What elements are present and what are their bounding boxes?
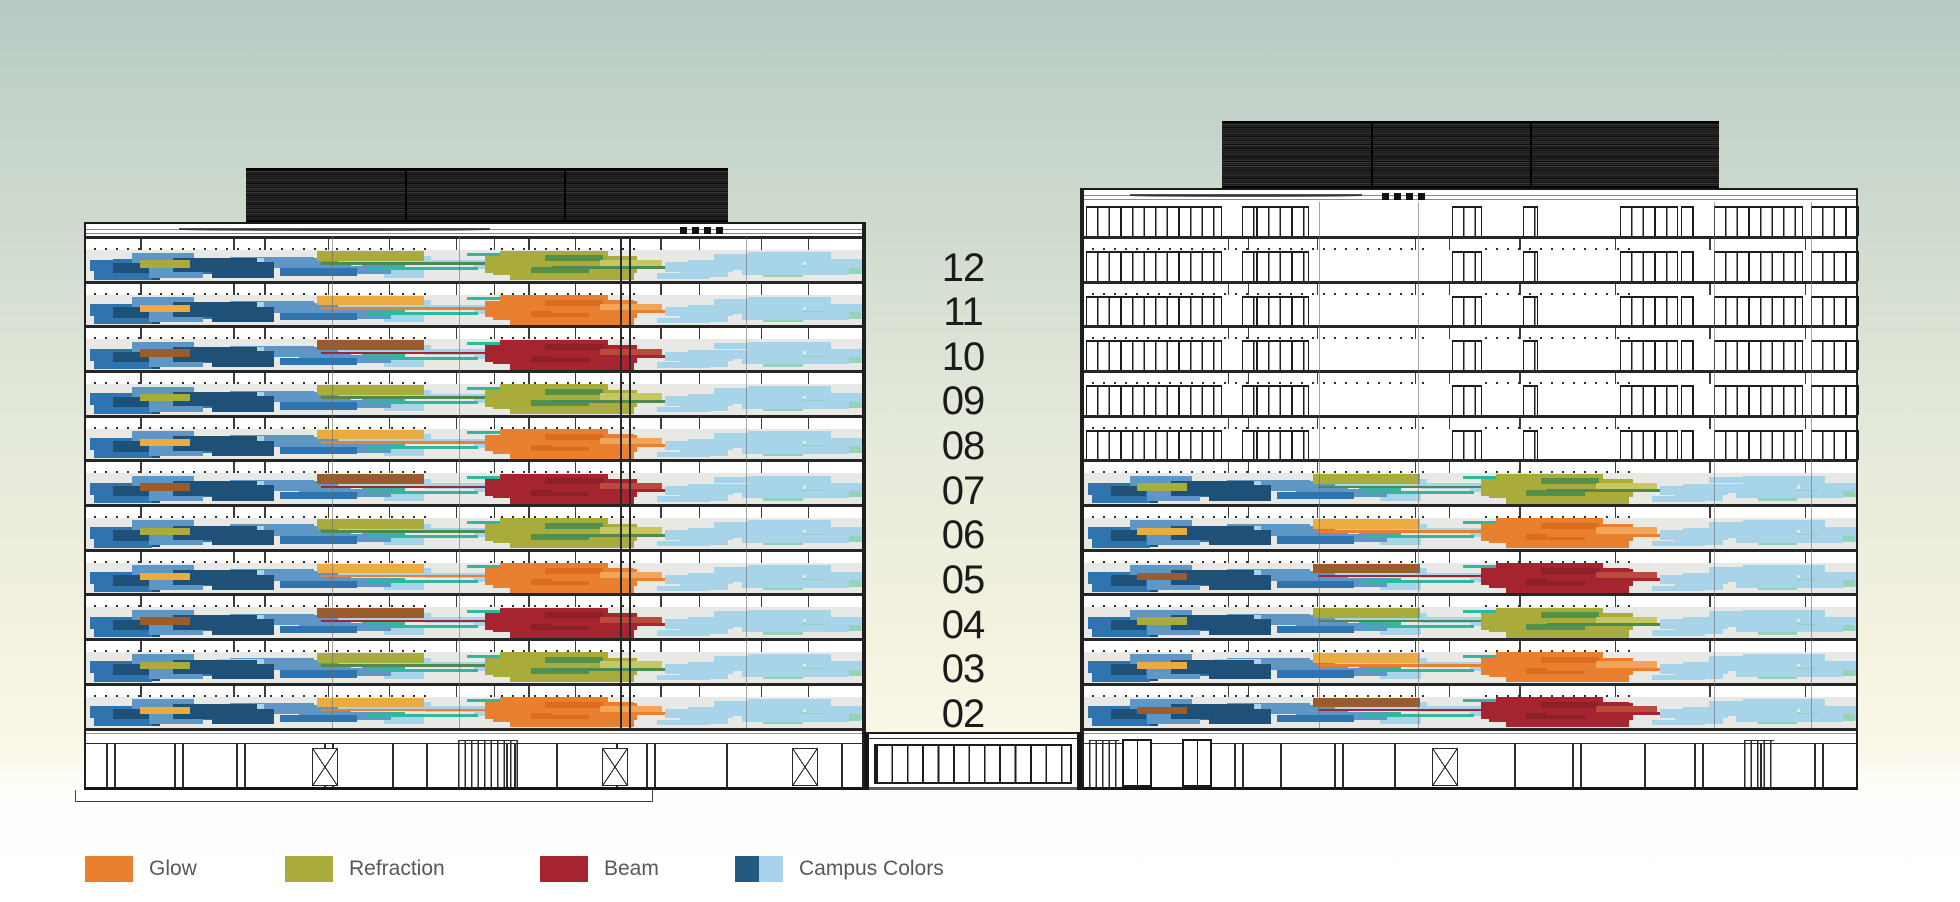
mural-band-05	[1084, 563, 1856, 594]
mullion-line	[660, 507, 661, 518]
storefront-mullion	[106, 744, 108, 788]
window-group	[1523, 296, 1538, 326]
mural-bar	[1318, 530, 1495, 533]
window-group	[1620, 296, 1678, 326]
mural-bar	[367, 491, 477, 494]
window-group	[1452, 296, 1482, 326]
mural-bar	[140, 439, 190, 447]
mullion-line	[1449, 686, 1450, 697]
mural-bar	[1137, 617, 1187, 625]
window-group	[1811, 340, 1859, 370]
mural-bar	[280, 447, 357, 454]
spandrel-band	[1084, 641, 1856, 652]
window-group	[1086, 206, 1222, 236]
mullion-line	[456, 507, 457, 518]
mural-bar	[280, 715, 357, 722]
mural-bar	[1652, 675, 1705, 680]
window-group	[1242, 385, 1257, 415]
mullion-line	[808, 328, 809, 339]
legend-label-campus-colors: Campus Colors	[799, 856, 944, 882]
mural-bar	[140, 305, 190, 313]
mural-bar	[280, 402, 357, 409]
facade-joint	[332, 236, 333, 728]
mullion-line	[808, 284, 809, 295]
mullion-line	[1805, 641, 1806, 652]
mullion-line	[1709, 284, 1710, 295]
mural-bar	[212, 307, 274, 323]
mural-bar	[1277, 626, 1354, 633]
floor-number-09: 09	[923, 380, 1003, 422]
building-left	[84, 222, 866, 790]
mullion-line	[1709, 686, 1710, 697]
mullion-line	[1805, 596, 1806, 607]
mural-bar	[140, 573, 190, 581]
storefront-mullion	[646, 744, 648, 788]
mullion-line	[660, 596, 661, 607]
mural-bar	[321, 396, 499, 399]
mural-band-07	[1084, 473, 1856, 504]
mullion-line	[456, 552, 457, 563]
mural-bar	[545, 389, 603, 395]
mural-band-02	[1084, 697, 1856, 728]
storefront-mullion	[1234, 744, 1236, 788]
window-row-11	[1084, 295, 1856, 326]
window-group	[1620, 251, 1678, 281]
mural-bar	[1652, 720, 1705, 725]
window-group	[1242, 206, 1257, 236]
mullion-line	[1449, 328, 1450, 339]
window-group	[1257, 206, 1309, 236]
storefront-mullion	[1242, 744, 1244, 788]
storefront-mullion	[426, 744, 428, 788]
mural-bar	[1652, 541, 1705, 546]
roof-penthouse-left	[246, 168, 728, 222]
mural-bar	[1277, 715, 1354, 722]
spandrel-band	[1084, 239, 1856, 250]
mullion-line	[1709, 328, 1710, 339]
mural-bar	[1209, 530, 1271, 546]
mural-bar	[212, 530, 274, 546]
mural-bar	[321, 307, 499, 310]
mural-bar	[212, 396, 274, 412]
mural-bar	[806, 572, 862, 579]
mural-bar	[280, 581, 357, 588]
window-group	[1523, 206, 1538, 236]
storefront-mullion	[1280, 744, 1282, 788]
mullion-line	[1805, 686, 1806, 697]
spandrel-band	[1084, 328, 1856, 339]
mural-bar	[280, 358, 357, 365]
legend-swatch-glow	[85, 856, 133, 882]
spandrel-band	[1084, 596, 1856, 607]
mullion-line	[808, 686, 809, 697]
mural-bar	[545, 702, 603, 708]
window-group	[1086, 430, 1222, 460]
mural-band-04	[1084, 607, 1856, 638]
roof-vents	[1382, 193, 1428, 200]
mural-bar	[1652, 586, 1705, 591]
mullion-line	[808, 641, 809, 652]
connector-roofline	[866, 738, 1080, 739]
mural-bar	[140, 349, 190, 357]
window-group	[1086, 340, 1222, 370]
window-group	[1681, 340, 1694, 370]
storefront-mullion	[1394, 744, 1396, 788]
mural-bar	[280, 492, 357, 499]
mural-bar	[1209, 664, 1271, 680]
entry-glazing	[458, 740, 518, 788]
window-group	[1811, 251, 1859, 281]
window-group	[1523, 430, 1538, 460]
mural-bar	[545, 523, 603, 529]
mullion-line	[1449, 596, 1450, 607]
storefront-mullion	[174, 744, 176, 788]
mural-bar	[665, 619, 733, 628]
mullion-line	[660, 552, 661, 563]
window-group	[1714, 296, 1803, 326]
window-group	[1714, 385, 1803, 415]
mural-bar	[657, 675, 710, 680]
spandrel-band	[1084, 507, 1856, 518]
mural-bar	[212, 619, 274, 635]
mullion-line	[1805, 328, 1806, 339]
mullion-line	[699, 641, 700, 652]
mullion-line	[1805, 462, 1806, 473]
facade-joint	[1418, 202, 1419, 728]
mural-bar	[212, 262, 274, 278]
parapet-line	[86, 233, 862, 234]
mullion-line	[660, 284, 661, 295]
window-row-08	[1084, 429, 1856, 460]
mural-bar	[367, 669, 477, 672]
legend-label-beam: Beam	[604, 856, 659, 882]
window-group	[1523, 251, 1538, 281]
mural-bar	[1660, 530, 1727, 539]
window-row-12	[1084, 250, 1856, 281]
mural-bar	[1541, 568, 1599, 574]
mullion-line	[456, 686, 457, 697]
mural-bar	[367, 535, 477, 538]
mural-bar	[806, 438, 862, 445]
basement-line	[75, 790, 653, 802]
mural-bar	[665, 530, 733, 539]
storefront-mullion	[236, 744, 238, 788]
mullion-line	[1449, 373, 1450, 384]
mural-bar	[1137, 528, 1187, 536]
roof-seam	[405, 170, 407, 222]
entry-glazing	[1744, 740, 1774, 788]
mural-bar	[367, 267, 477, 270]
window-group	[1620, 385, 1678, 415]
mullion-line	[1805, 284, 1806, 295]
mullion-line	[1449, 239, 1450, 250]
mural-bar	[1318, 664, 1495, 667]
mural-bar	[367, 580, 477, 583]
connector-post-left	[864, 732, 869, 790]
mullion-line	[699, 462, 700, 473]
mullion-line	[699, 596, 700, 607]
window-group	[1242, 251, 1257, 281]
mullion-line	[1805, 418, 1806, 429]
mural-bar	[1541, 702, 1599, 708]
mural-bar	[665, 441, 733, 450]
mullion-line	[456, 328, 457, 339]
storefront-mullion	[841, 744, 843, 788]
spandrel-band	[1084, 462, 1856, 473]
mural-bar	[1209, 619, 1271, 635]
mural-bar	[657, 362, 710, 367]
roof-seam	[1530, 123, 1532, 188]
mullion-line	[1449, 641, 1450, 652]
mural-bar	[1800, 706, 1856, 713]
mullion-line	[808, 239, 809, 250]
window-group	[1257, 385, 1309, 415]
mural-bar	[367, 401, 477, 404]
mullion-line	[660, 462, 661, 473]
mural-bar	[1800, 617, 1856, 624]
mullion-line	[1709, 552, 1710, 563]
mural-bar	[545, 657, 603, 663]
mullion-line	[660, 373, 661, 384]
facade-joint	[1811, 202, 1812, 728]
mullion-line	[761, 418, 762, 429]
mural-bar	[545, 255, 603, 261]
mural-bar	[280, 536, 357, 543]
mural-bar	[1137, 707, 1187, 715]
window-group	[1811, 296, 1859, 326]
mural-bar	[806, 259, 862, 266]
expansion-joint	[620, 236, 622, 728]
mural-bar	[1209, 485, 1271, 501]
connector-glazing	[874, 744, 1072, 784]
storefront-mullion	[182, 744, 184, 788]
parapet-reflection	[179, 228, 489, 231]
mural-bar	[280, 670, 357, 677]
storefront-mullion	[1514, 744, 1516, 788]
window-group	[1242, 296, 1257, 326]
legend-label-glow: Glow	[149, 856, 197, 882]
mural-bar	[140, 483, 190, 491]
mural-bar	[140, 617, 190, 625]
mural-bar	[1313, 564, 1420, 574]
mullion-line	[808, 596, 809, 607]
storefront-mullion	[1572, 744, 1574, 788]
mural-bar	[1277, 670, 1354, 677]
mullion-line	[699, 328, 700, 339]
mural-bar	[1800, 661, 1856, 668]
mural-bar	[806, 393, 862, 400]
mural-bar	[806, 617, 862, 624]
window-group	[1714, 206, 1803, 236]
storefront-mullion	[556, 744, 558, 788]
floor-number-11: 11	[923, 291, 1003, 333]
mullion-line	[1709, 507, 1710, 518]
mural-bar	[545, 568, 603, 574]
mural-bar	[545, 478, 603, 484]
window-group	[1620, 430, 1678, 460]
facade-joint	[459, 236, 460, 728]
mural-bar	[545, 300, 603, 306]
mural-bar	[657, 452, 710, 457]
mullion-line	[1709, 418, 1710, 429]
mullion-line	[761, 596, 762, 607]
mullion-line	[1449, 284, 1450, 295]
mullion-line	[761, 462, 762, 473]
mullion-line	[1805, 373, 1806, 384]
mullion-line	[761, 328, 762, 339]
legend-swatch-refraction	[285, 856, 333, 882]
connector-post-right	[1077, 732, 1082, 790]
mullion-line	[660, 239, 661, 250]
storefront-mullion	[1580, 744, 1582, 788]
mullion-line	[1709, 373, 1710, 384]
mullion-line	[660, 328, 661, 339]
mural-bar	[1318, 575, 1495, 578]
window-group	[1086, 296, 1222, 326]
mural-bar	[665, 307, 733, 316]
window-group	[1257, 251, 1309, 281]
mural-bar	[1660, 664, 1727, 673]
mural-bar	[212, 351, 274, 367]
mural-bar	[657, 630, 710, 635]
storefront-mullion	[1644, 744, 1646, 788]
mural-bar	[1137, 662, 1187, 670]
mural-bar	[1541, 523, 1599, 529]
mural-bar	[321, 352, 499, 355]
mural-bar	[280, 313, 357, 320]
mullion-line	[699, 686, 700, 697]
mural-bar	[545, 612, 603, 618]
parapet-right	[1084, 188, 1856, 202]
mural-bar	[1660, 575, 1727, 584]
facade-joint	[746, 236, 747, 728]
service-door	[602, 748, 628, 787]
storefront-mullion	[1814, 744, 1816, 788]
mullion-line	[1805, 552, 1806, 563]
mullion-line	[660, 686, 661, 697]
mural-bar	[657, 318, 710, 323]
parapet-reflection	[1130, 194, 1362, 197]
mullion-line	[699, 239, 700, 250]
storefront-mullion	[1822, 744, 1824, 788]
mural-bar	[1800, 483, 1856, 490]
storefront-mullion	[114, 744, 116, 788]
mural-bar	[367, 312, 477, 315]
mural-bar	[1660, 486, 1727, 495]
parapet-line	[1084, 199, 1856, 200]
legend-swatch-campus-colors	[735, 856, 783, 882]
window-group	[1620, 206, 1678, 236]
roof-penthouse-right	[1222, 121, 1719, 188]
mural-bar	[140, 260, 190, 268]
storefront-mullion	[1342, 744, 1344, 788]
mural-bar	[280, 268, 357, 275]
window-group	[1714, 430, 1803, 460]
door-leaf-line	[1137, 741, 1138, 786]
mural-bar	[1209, 709, 1271, 725]
mullion-line	[761, 552, 762, 563]
expansion-joint	[629, 236, 631, 728]
mural-bar	[1652, 496, 1705, 501]
mullion-line	[1805, 507, 1806, 518]
mural-bar	[806, 661, 862, 668]
mullion-line	[699, 507, 700, 518]
mural-bar	[1318, 709, 1495, 712]
mural-bar	[657, 407, 710, 412]
mural-bar	[212, 441, 274, 457]
roof-seam	[1371, 123, 1373, 188]
mural-bar	[665, 352, 733, 361]
mural-bar	[545, 344, 603, 350]
entry-door	[1122, 739, 1152, 788]
storefront-mullion	[1702, 744, 1704, 788]
mural-bar	[806, 706, 862, 713]
facade-joint	[1714, 202, 1715, 728]
mural-bar	[665, 396, 733, 405]
mural-bar	[1137, 573, 1187, 581]
window-group	[1811, 430, 1859, 460]
window-group	[1811, 206, 1859, 236]
mural-bar	[367, 357, 477, 360]
mural-bar	[806, 304, 862, 311]
mural-bar	[657, 273, 710, 278]
door-leaf-line	[1197, 741, 1198, 786]
window-group	[1257, 296, 1309, 326]
mural-bar	[545, 434, 603, 440]
storefront-mullion	[392, 744, 394, 788]
mural-bar	[321, 620, 499, 623]
mullion-line	[660, 641, 661, 652]
penthouse-window-row	[1084, 205, 1856, 236]
mullion-line	[1709, 239, 1710, 250]
mullion-line	[808, 373, 809, 384]
mural-bar	[321, 441, 499, 444]
mural-bar	[321, 664, 499, 667]
window-group	[1257, 340, 1309, 370]
mural-bar	[1313, 474, 1420, 484]
window-group	[1086, 385, 1222, 415]
floor-number-10: 10	[923, 336, 1003, 378]
mural-bar	[1660, 619, 1727, 628]
ground-headline	[86, 733, 862, 734]
window-group	[1242, 340, 1257, 370]
window-group	[1523, 385, 1538, 415]
window-group	[1714, 340, 1803, 370]
mullion-line	[808, 418, 809, 429]
mullion-line	[456, 418, 457, 429]
mural-bar	[665, 262, 733, 271]
mural-band-03	[1084, 652, 1856, 683]
mullion-line	[1709, 641, 1710, 652]
spandrel-band	[1084, 552, 1856, 563]
storefront-mullion	[726, 744, 728, 788]
mullion-line	[1449, 507, 1450, 518]
mullion-line	[1449, 552, 1450, 563]
mural-bar	[657, 496, 710, 501]
window-row-09	[1084, 384, 1856, 415]
mural-bar	[367, 446, 477, 449]
mural-bar	[1313, 698, 1420, 708]
mural-bar	[321, 486, 499, 489]
window-group	[1242, 430, 1257, 460]
mural-bar	[140, 528, 190, 536]
window-group	[1452, 340, 1482, 370]
mural-bar	[1277, 536, 1354, 543]
service-door	[1432, 748, 1458, 787]
mural-bar	[1318, 620, 1495, 623]
mural-bar	[140, 394, 190, 402]
mural-bar	[657, 720, 710, 725]
